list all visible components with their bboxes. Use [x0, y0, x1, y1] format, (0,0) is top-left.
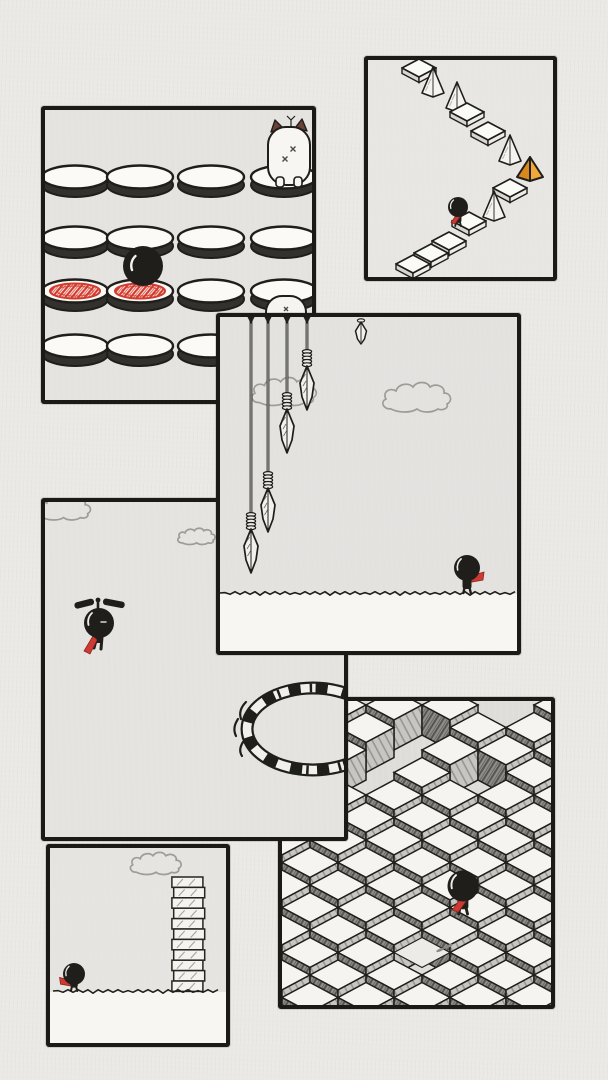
stickman-character [454, 555, 484, 593]
panel-falling-spears-scene [220, 317, 517, 651]
cloud [130, 852, 181, 874]
falling-spearhead [356, 319, 367, 344]
tower-block [172, 960, 203, 970]
tower-block [174, 950, 205, 960]
path-tile [471, 122, 505, 146]
tower-block [172, 939, 203, 949]
cloud [45, 502, 90, 520]
jump-pad [45, 166, 108, 198]
tower-block [174, 887, 205, 897]
flyer-character [74, 598, 126, 654]
jump-pad [45, 227, 108, 259]
hamster-character [268, 116, 310, 187]
tower-block [174, 971, 205, 981]
propeller-blade [102, 598, 125, 609]
tower-block [172, 898, 203, 908]
ring-hoop [247, 688, 344, 770]
propeller-blade [74, 598, 95, 609]
panel-block-tower [46, 844, 230, 1047]
jump-pad [107, 166, 173, 198]
tower-block [172, 919, 203, 929]
ball-character [123, 246, 163, 286]
jump-pad [45, 335, 108, 367]
ground [220, 594, 517, 651]
block-tower [172, 877, 205, 991]
falling-spear [300, 317, 314, 410]
jump-pad [178, 166, 244, 198]
jump-pad [107, 335, 173, 367]
jump-pad [251, 227, 312, 259]
cloud [383, 383, 451, 413]
falling-spear [244, 317, 258, 573]
panel-zigzag-path [364, 56, 557, 281]
falling-spear [280, 317, 294, 453]
tower-block [172, 877, 203, 887]
game-screenshots-collage [0, 0, 608, 1080]
ground [50, 992, 226, 1043]
jump-pad [178, 280, 244, 312]
falling-spear [261, 317, 275, 532]
jump-pad [178, 227, 244, 259]
panel-zigzag-path-scene [368, 60, 553, 277]
panel-falling-spears [216, 313, 521, 655]
panel-block-tower-scene [50, 848, 226, 1043]
tower-block [174, 929, 205, 939]
cloud [178, 528, 215, 544]
spike-pyramid [499, 135, 521, 165]
stickman-character [60, 963, 85, 991]
tower-block [174, 908, 205, 918]
red-jump-pad [45, 280, 108, 312]
